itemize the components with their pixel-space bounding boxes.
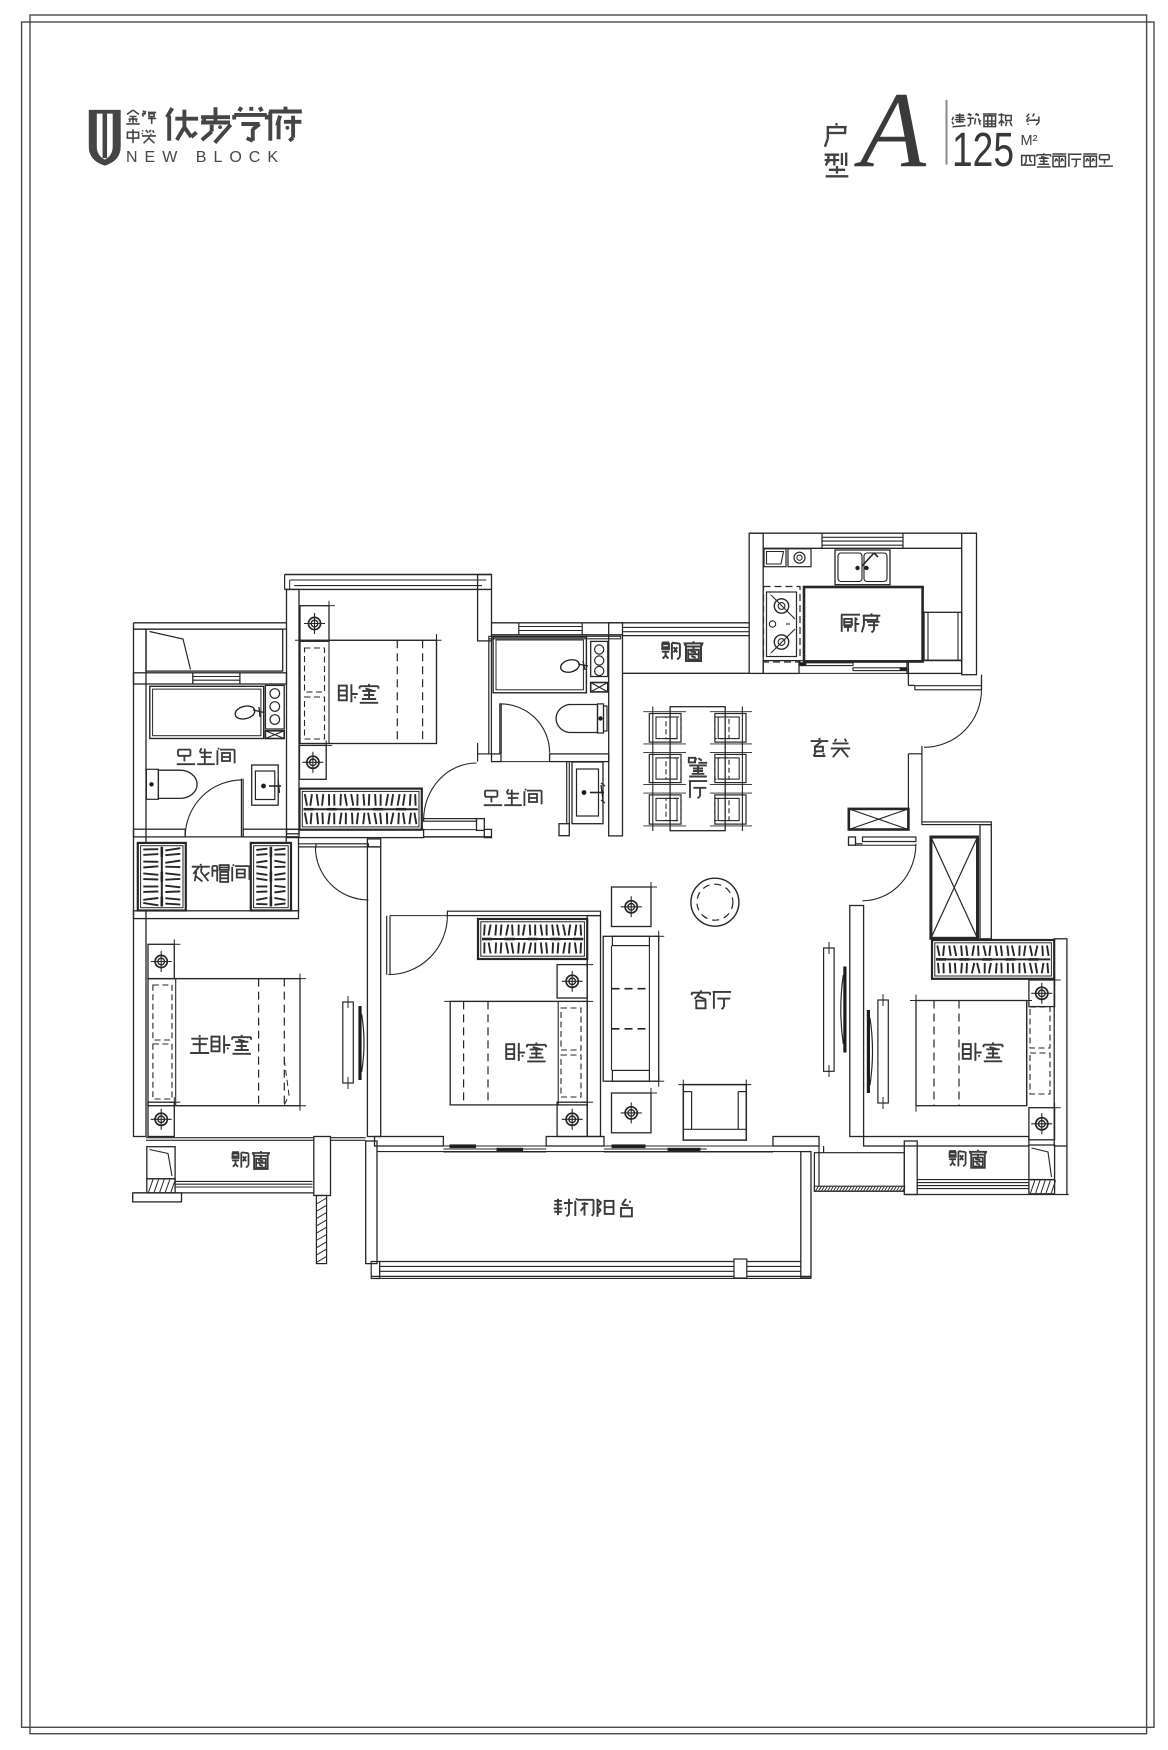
svg-text:NEW BLOCK: NEW BLOCK (126, 149, 285, 166)
svg-text:M²: M² (1021, 133, 1038, 149)
svg-text:A: A (854, 71, 927, 190)
svg-text:125: 125 (952, 124, 1014, 177)
